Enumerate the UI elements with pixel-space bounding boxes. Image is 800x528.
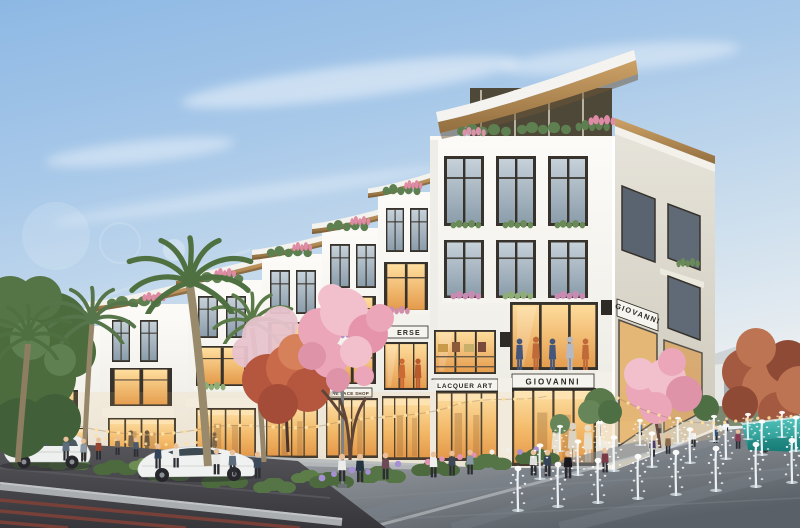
architectural-rendering: THE FACE SHOP THE FACE SHOP ERSE (0, 0, 800, 528)
display-window (384, 342, 428, 390)
sign-lacquer-art-text: LACQUER ART (437, 383, 493, 390)
sign-giovanni-front-text: GIOVANNI (526, 378, 581, 387)
hanging-sign (601, 300, 612, 315)
hanging-sign (500, 332, 511, 347)
sign-partial-store-text: ERSE (397, 330, 421, 337)
